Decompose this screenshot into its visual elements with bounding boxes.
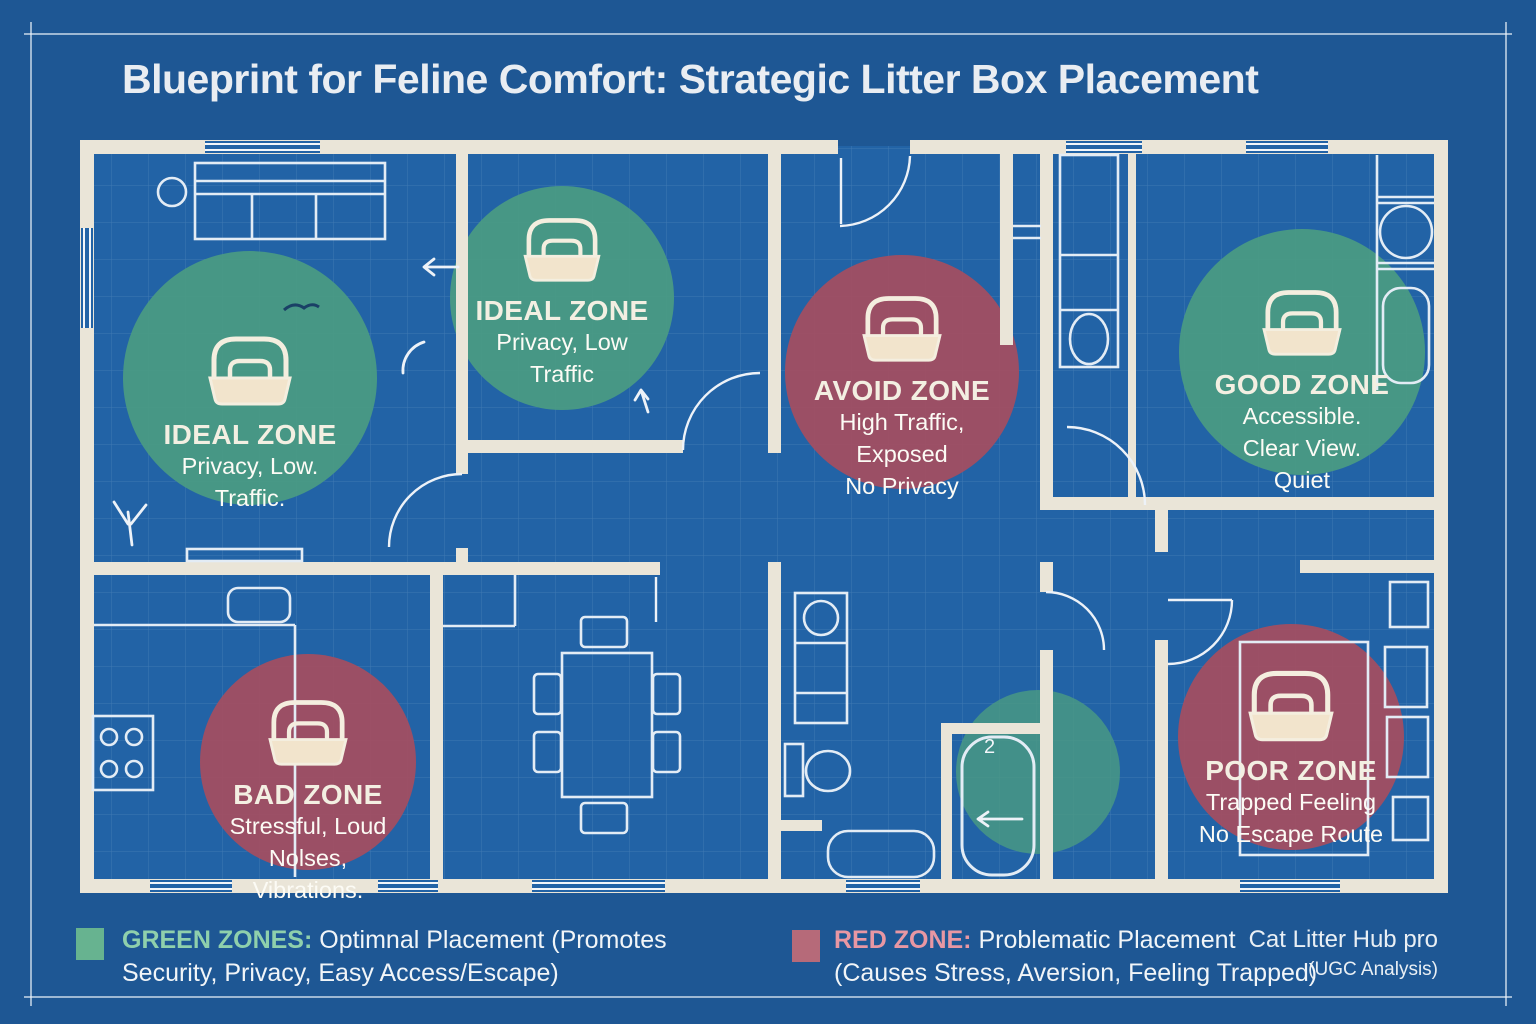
legend-green-line1: GREEN ZONES: Optimnal Placement (Promote… bbox=[122, 924, 697, 957]
legend-red-text: Problematic Placement bbox=[978, 926, 1235, 954]
bad-zone-circle bbox=[200, 654, 416, 870]
ideal-zone-room-circle bbox=[450, 186, 674, 410]
avoid-zone-circle bbox=[785, 255, 1019, 489]
red-zone-swatch bbox=[792, 930, 820, 962]
floor-plan-svg bbox=[0, 0, 1536, 1024]
poor-zone-circle bbox=[1178, 624, 1404, 850]
ideal-zone-living-circle bbox=[123, 251, 377, 505]
legend-green-text: Optimnal Placement (Promotes bbox=[319, 926, 666, 954]
attribution-note: (UGC Analysis) bbox=[1249, 959, 1438, 981]
green-zone-swatch bbox=[76, 928, 104, 960]
legend-green: GREEN ZONES: Optimnal Placement (Promote… bbox=[122, 924, 697, 990]
shower-number-label: 2 bbox=[984, 736, 995, 759]
shower-green-blob bbox=[956, 690, 1120, 854]
legend-green-line2: Security, Privacy, Easy Access/Escape) bbox=[122, 957, 697, 990]
good-zone-circle bbox=[1179, 229, 1425, 475]
page-title: Blueprint for Feline Comfort: Strategic … bbox=[122, 56, 1258, 103]
attribution: Cat Litter Hub pro (UGC Analysis) bbox=[1249, 926, 1438, 981]
legend-red-label: RED ZONE: bbox=[834, 926, 972, 954]
infographic-canvas: Blueprint for Feline Comfort: Strategic … bbox=[0, 0, 1536, 1024]
legend-green-label: GREEN ZONES: bbox=[122, 926, 312, 954]
attribution-source: Cat Litter Hub pro bbox=[1249, 926, 1438, 954]
